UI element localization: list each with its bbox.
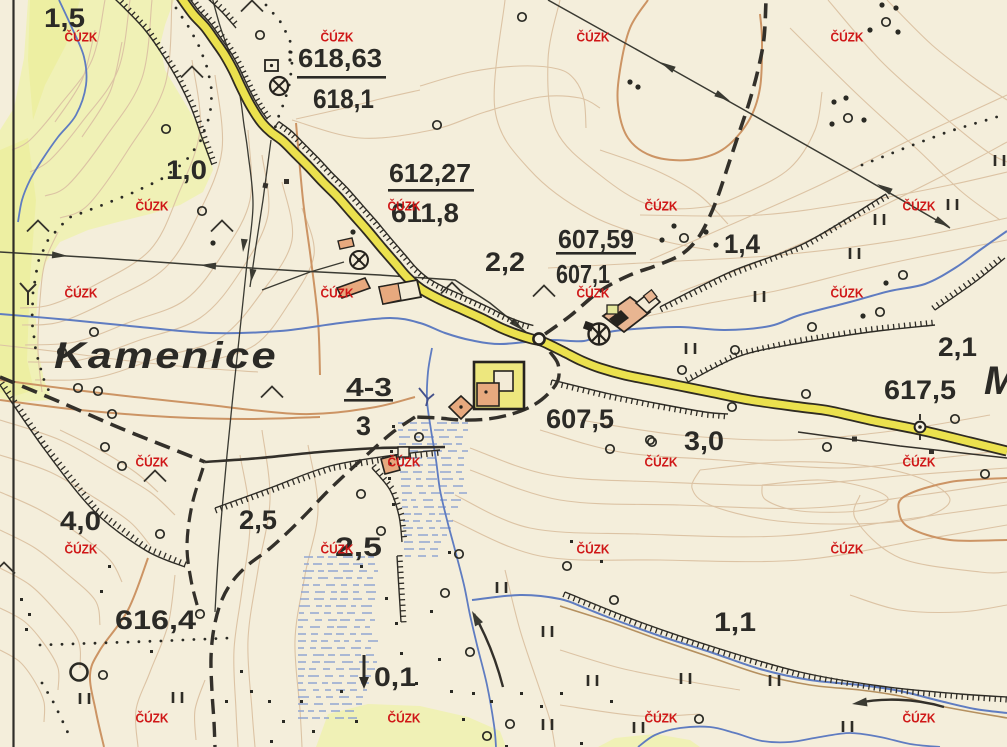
svg-text:ČÚZK: ČÚZK	[136, 711, 169, 726]
svg-text:3,0: 3,0	[684, 426, 724, 456]
svg-text:ČÚZK: ČÚZK	[321, 30, 354, 45]
svg-text:ČÚZK: ČÚZK	[577, 542, 610, 557]
svg-text:ČÚZK: ČÚZK	[321, 542, 354, 557]
svg-text:1,4: 1,4	[724, 229, 760, 259]
svg-text:4-3: 4-3	[346, 372, 392, 402]
svg-text:Kamenice: Kamenice	[54, 335, 278, 376]
svg-text:ČÚZK: ČÚZK	[645, 199, 678, 214]
svg-text:ČÚZK: ČÚZK	[831, 30, 864, 45]
svg-text:616,4: 616,4	[115, 605, 196, 635]
svg-text:M: M	[984, 359, 1007, 403]
svg-text:ČÚZK: ČÚZK	[65, 30, 98, 45]
svg-text:ČÚZK: ČÚZK	[65, 286, 98, 301]
svg-text:4,0: 4,0	[60, 506, 101, 536]
svg-text:ČÚZK: ČÚZK	[388, 455, 421, 470]
svg-text:612,27: 612,27	[389, 158, 471, 188]
svg-text:ČÚZK: ČÚZK	[903, 711, 936, 726]
svg-text:617,5: 617,5	[884, 375, 956, 405]
svg-text:ČÚZK: ČÚZK	[321, 286, 354, 301]
svg-text:ČÚZK: ČÚZK	[136, 199, 169, 214]
svg-text:ČÚZK: ČÚZK	[388, 199, 421, 214]
svg-text:2,1: 2,1	[938, 332, 977, 362]
svg-text:ČÚZK: ČÚZK	[831, 542, 864, 557]
svg-text:ČÚZK: ČÚZK	[645, 711, 678, 726]
svg-text:ČÚZK: ČÚZK	[903, 455, 936, 470]
svg-text:1,0: 1,0	[166, 155, 207, 185]
svg-text:607,1: 607,1	[556, 259, 610, 289]
svg-text:ČÚZK: ČÚZK	[136, 455, 169, 470]
svg-text:ČÚZK: ČÚZK	[388, 711, 421, 726]
svg-text:ČÚZK: ČÚZK	[65, 542, 98, 557]
svg-text:618,1: 618,1	[313, 84, 374, 114]
svg-text:ČÚZK: ČÚZK	[645, 455, 678, 470]
svg-text:2,2: 2,2	[485, 247, 525, 277]
svg-text:1,1: 1,1	[714, 607, 756, 637]
svg-text:618,63: 618,63	[298, 43, 382, 73]
svg-text:1,5: 1,5	[44, 3, 85, 33]
svg-text:ČÚZK: ČÚZK	[831, 286, 864, 301]
svg-text:0,1: 0,1	[374, 662, 416, 692]
svg-text:607,5: 607,5	[546, 404, 614, 434]
svg-text:ČÚZK: ČÚZK	[577, 286, 610, 301]
svg-text:2,5: 2,5	[239, 505, 277, 535]
svg-text:3: 3	[356, 411, 371, 441]
svg-text:607,59: 607,59	[558, 224, 634, 254]
svg-text:ČÚZK: ČÚZK	[903, 199, 936, 214]
svg-text:ČÚZK: ČÚZK	[577, 30, 610, 45]
